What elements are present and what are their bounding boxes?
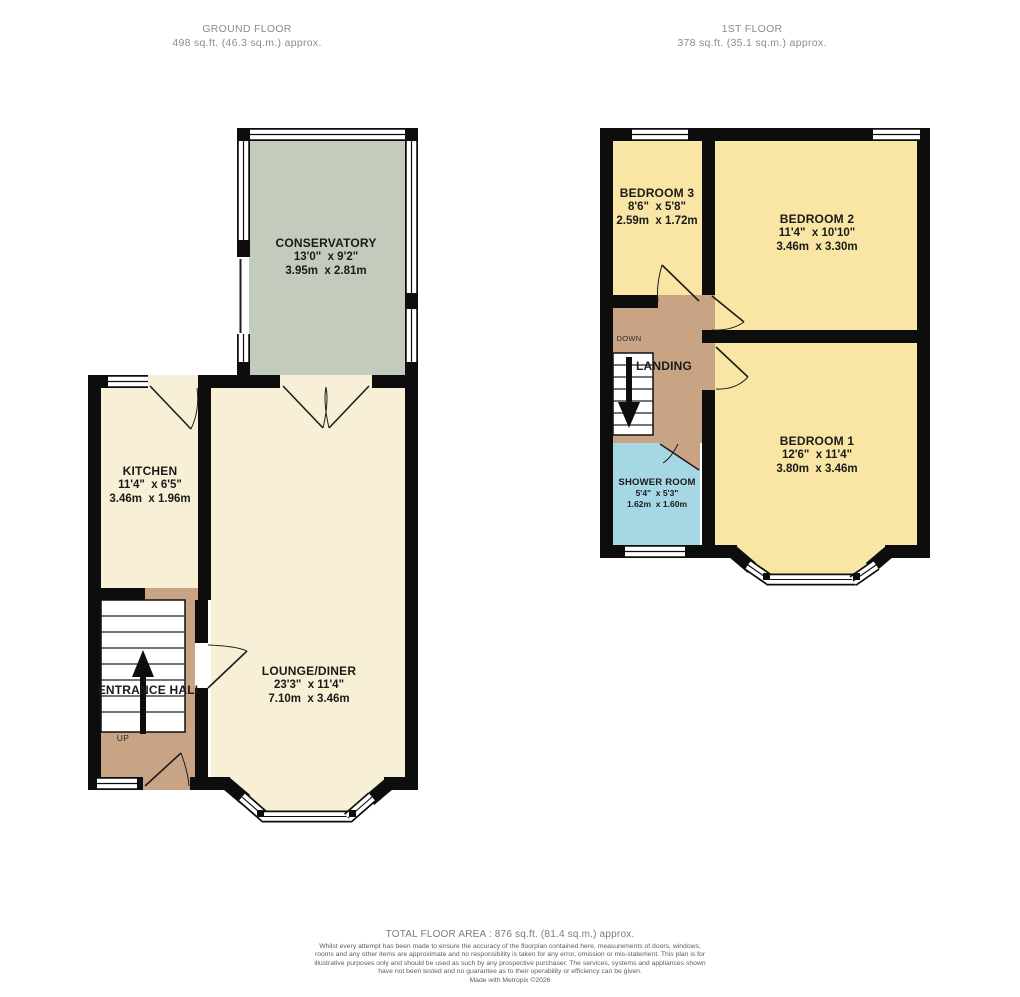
first-floor-title: 1ST FLOOR 378 sq.ft. (35.1 sq.m.) approx…	[677, 22, 826, 50]
conservatory-opening-gap	[280, 375, 372, 388]
stairs-ground	[101, 600, 185, 734]
room-label-kitchen: KITCHEN 11'4" x 6'5" 3.46m x 1.96m	[109, 464, 190, 506]
room-label-landing: LANDING	[636, 359, 692, 373]
first-floor-subtitle: 378 sq.ft. (35.1 sq.m.) approx.	[677, 36, 826, 50]
room-label-lounge-diner: LOUNGE/DINER 23'3" x 11'4" 7.10m x 3.46m	[262, 664, 356, 706]
bedroom2-doorway	[702, 295, 715, 332]
total-floor-area: TOTAL FLOOR AREA : 876 sq.ft. (81.4 sq.m…	[295, 929, 725, 940]
floorplan-page: GROUND FLOOR 498 sq.ft. (46.3 sq.m.) app…	[0, 0, 1020, 997]
ground-floor-subtitle: 498 sq.ft. (46.3 sq.m.) approx.	[172, 36, 321, 50]
room-label-bedroom1: BEDROOM 1 12'6" x 11'4" 3.80m x 3.46m	[776, 434, 857, 476]
up-label: UP	[117, 733, 129, 743]
room-label-bedroom2: BEDROOM 2 11'4" x 10'10" 3.46m x 3.30m	[776, 212, 857, 254]
kitchen-backdoor-gap	[148, 375, 198, 388]
room-label-shower-room: SHOWER ROOM 5'4" x 5'3" 1.62m x 1.60m	[618, 477, 695, 510]
footer: TOTAL FLOOR AREA : 876 sq.ft. (81.4 sq.m…	[295, 929, 725, 985]
disclaimer-text: Whilst every attempt has been made to en…	[313, 943, 707, 977]
lounge-diner-area	[211, 388, 405, 777]
credit-text: Made with Metropix ©2026	[295, 977, 725, 985]
first-floor-title-line: 1ST FLOOR	[677, 22, 826, 36]
ground-floor-title-line: GROUND FLOOR	[172, 22, 321, 36]
ground-floor-title: GROUND FLOOR 498 sq.ft. (46.3 sq.m.) app…	[172, 22, 321, 50]
room-label-entrance-hall: ENTRANCE HALL	[98, 683, 203, 697]
down-label: DOWN	[617, 334, 642, 343]
room-label-conservatory: CONSERVATORY 13'0" x 9'2" 3.95m x 2.81m	[275, 236, 376, 278]
front-door-gap	[143, 777, 190, 790]
room-label-bedroom3: BEDROOM 3 8'6" x 5'8" 2.59m x 1.72m	[616, 186, 697, 228]
bedroom1-doorway	[702, 343, 715, 390]
